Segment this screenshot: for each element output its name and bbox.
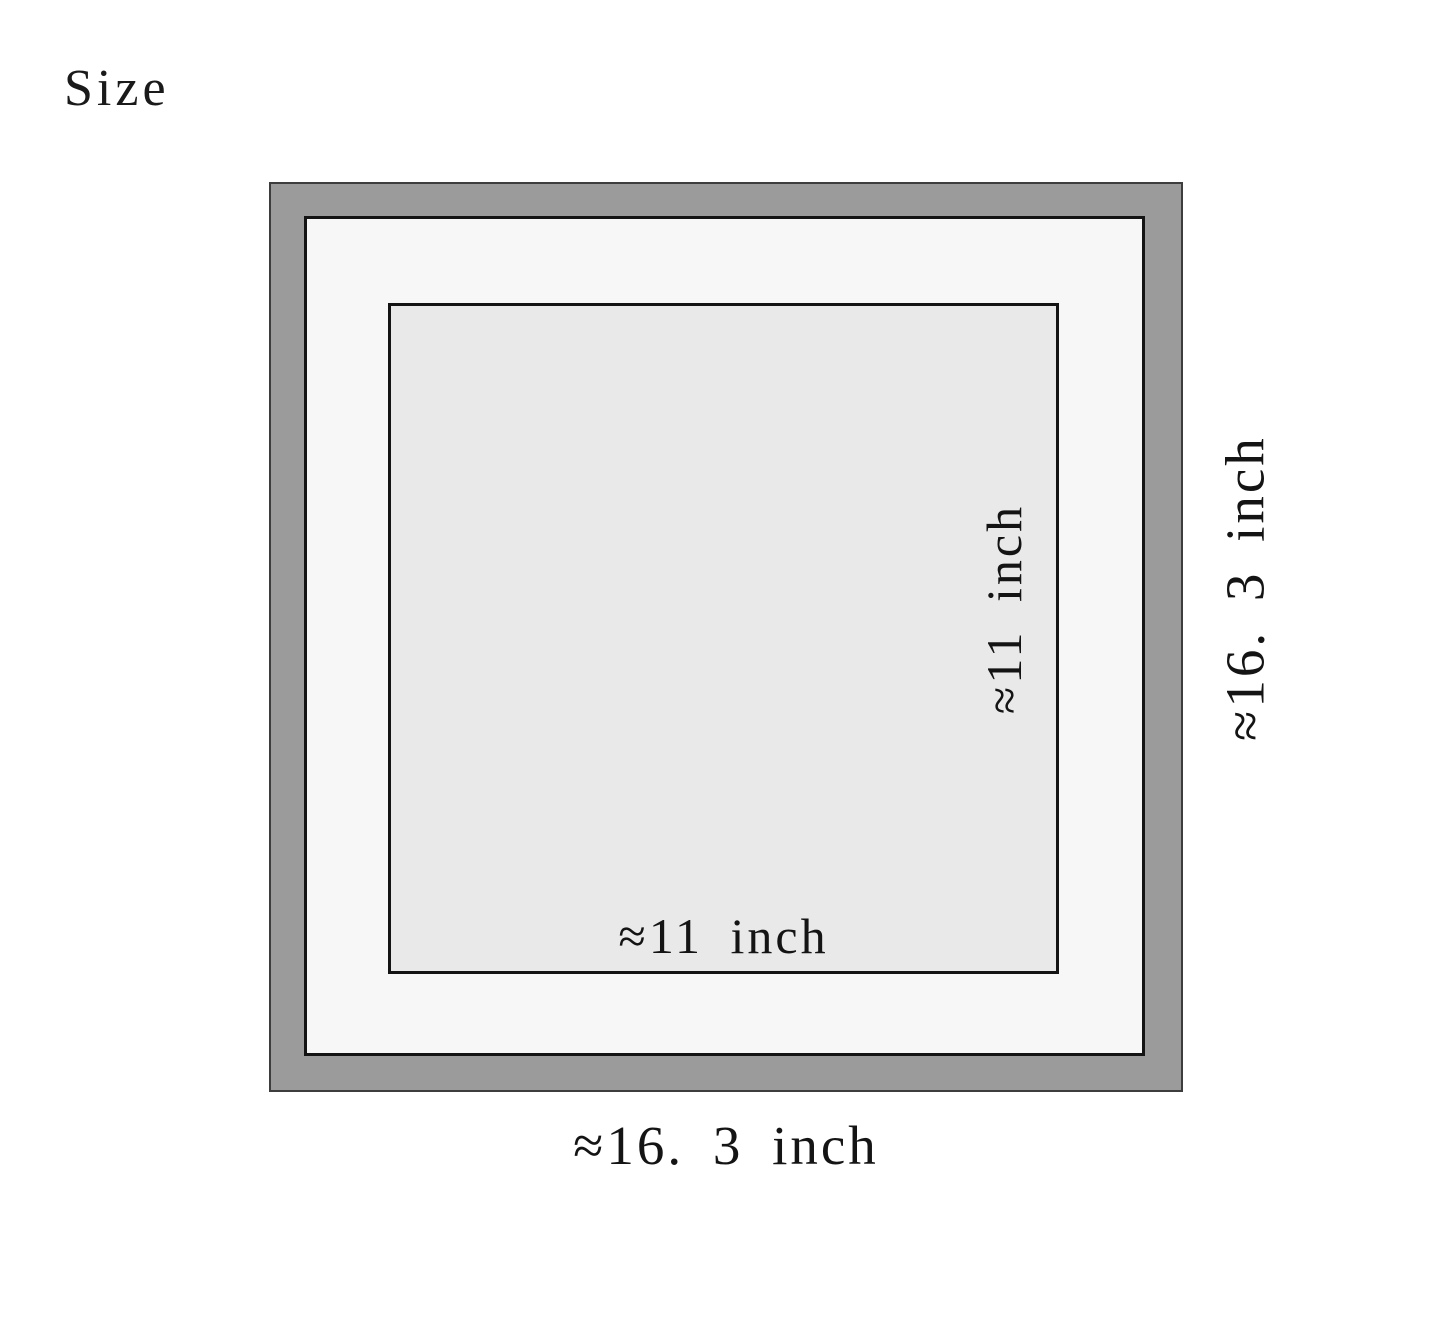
outer-frame-rect: ≈11 inch ≈11 inch bbox=[269, 182, 1183, 1092]
opening-rect: ≈11 inch ≈11 inch bbox=[388, 303, 1059, 974]
frame-height-label: ≈16. 3 inch bbox=[1218, 435, 1273, 741]
page-title: Size bbox=[64, 58, 170, 120]
opening-width-label: ≈11 inch bbox=[391, 911, 1056, 961]
mat-rect: ≈11 inch ≈11 inch bbox=[304, 216, 1145, 1056]
frame-width-label: ≈16. 3 inch bbox=[269, 1118, 1183, 1173]
opening-height-label: ≈11 inch bbox=[979, 504, 1029, 714]
size-diagram-page: Size ≈11 inch ≈11 inch ≈16. 3 inch ≈16. … bbox=[0, 0, 1445, 1342]
